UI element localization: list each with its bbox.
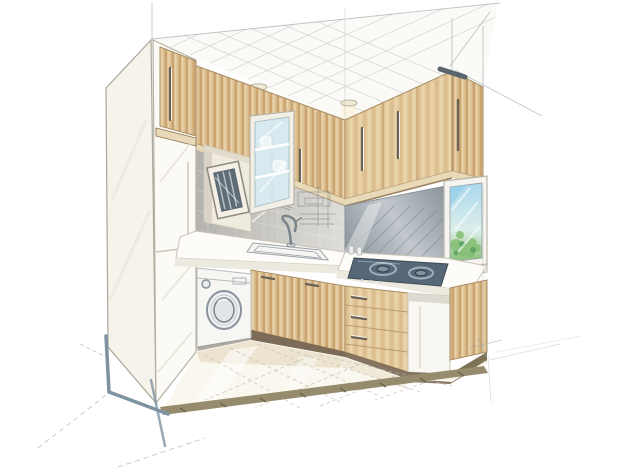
downlight-right <box>341 100 357 106</box>
washer-dial <box>202 280 210 288</box>
refrigerator-column <box>106 40 196 403</box>
upper-cabinet-end-door <box>452 71 483 179</box>
niche-framed-panel <box>204 145 251 232</box>
sketch-canvas <box>0 0 620 472</box>
kitchen-sketch <box>0 0 620 472</box>
burner-left-center <box>377 266 389 272</box>
end-cabinet-white <box>408 293 450 374</box>
burner-right-center <box>416 270 427 276</box>
washer-door-glass <box>214 298 234 322</box>
glass-front-cabinet <box>250 111 294 214</box>
column-side-panel <box>106 40 156 403</box>
end-panel-wood <box>450 280 487 360</box>
column-top-cabinet-door <box>160 47 196 136</box>
